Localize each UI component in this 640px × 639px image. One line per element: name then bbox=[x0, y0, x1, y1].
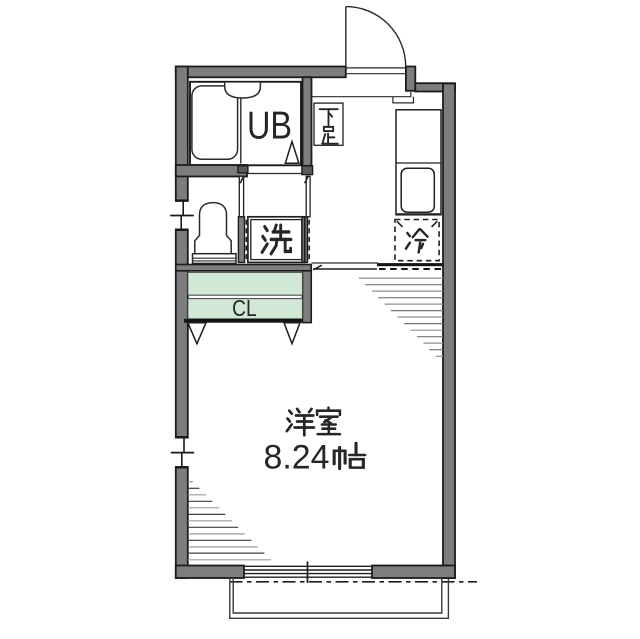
svg-text:UB: UB bbox=[247, 105, 292, 148]
svg-text:8.24: 8.24 bbox=[264, 438, 330, 476]
svg-text:CL: CL bbox=[232, 295, 257, 321]
